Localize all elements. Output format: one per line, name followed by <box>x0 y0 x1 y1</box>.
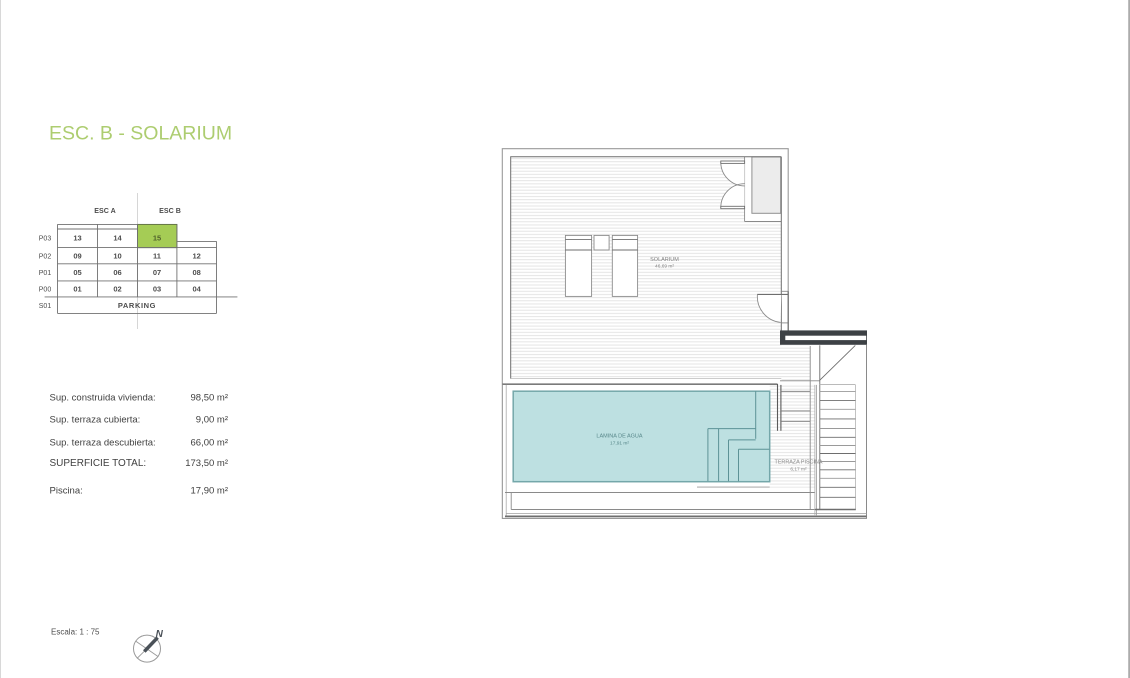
svg-text:Sup. construida vivienda:: Sup. construida vivienda: <box>50 393 156 404</box>
svg-text:Escala: 1 : 75: Escala: 1 : 75 <box>51 627 100 636</box>
svg-text:03: 03 <box>153 285 161 294</box>
svg-text:04: 04 <box>193 285 202 294</box>
svg-text:08: 08 <box>193 268 201 277</box>
svg-text:LAMINA DE AGUA: LAMINA DE AGUA <box>596 434 642 440</box>
svg-text:10: 10 <box>113 252 121 261</box>
svg-text:173,50 m²: 173,50 m² <box>185 458 228 469</box>
svg-text:ESC A: ESC A <box>94 207 115 215</box>
svg-text:11: 11 <box>153 252 161 261</box>
svg-text:05: 05 <box>73 268 81 277</box>
svg-text:15: 15 <box>153 234 161 243</box>
svg-text:ESC B: ESC B <box>159 207 181 215</box>
svg-text:12: 12 <box>193 252 201 261</box>
svg-text:SOLARIUM: SOLARIUM <box>650 257 679 263</box>
svg-text:06: 06 <box>113 268 121 277</box>
svg-text:PARKING: PARKING <box>118 301 156 310</box>
svg-text:07: 07 <box>153 268 161 277</box>
svg-text:Sup. terraza cubierta:: Sup. terraza cubierta: <box>50 415 141 426</box>
svg-text:ESC. B - SOLARIUM: ESC. B - SOLARIUM <box>49 123 232 145</box>
svg-text:66,00 m²: 66,00 m² <box>191 438 229 449</box>
svg-text:Piscina:: Piscina: <box>50 486 83 497</box>
svg-text:46,69 m²: 46,69 m² <box>655 264 674 270</box>
svg-text:P02: P02 <box>39 254 52 261</box>
svg-text:S01: S01 <box>39 303 52 310</box>
svg-text:P00: P00 <box>39 287 52 294</box>
svg-text:9,00 m²: 9,00 m² <box>196 415 228 426</box>
svg-text:Sup. terraza descubierta:: Sup. terraza descubierta: <box>50 438 156 449</box>
svg-text:P01: P01 <box>39 270 52 277</box>
svg-text:09: 09 <box>73 252 81 261</box>
svg-text:13: 13 <box>73 234 81 243</box>
svg-text:P03: P03 <box>39 236 52 243</box>
svg-text:17,91 m²: 17,91 m² <box>610 441 629 447</box>
svg-text:14: 14 <box>113 234 122 243</box>
svg-text:17,90 m²: 17,90 m² <box>191 486 229 497</box>
svg-text:6,17 m²: 6,17 m² <box>790 467 807 473</box>
svg-text:02: 02 <box>113 285 121 294</box>
svg-text:01: 01 <box>73 285 81 294</box>
svg-text:TERRAZA PISCINA: TERRAZA PISCINA <box>775 460 823 466</box>
svg-text:SUPERFICIE TOTAL:: SUPERFICIE TOTAL: <box>50 458 147 469</box>
svg-text:98,50 m²: 98,50 m² <box>191 393 229 404</box>
svg-text:N: N <box>156 629 164 640</box>
